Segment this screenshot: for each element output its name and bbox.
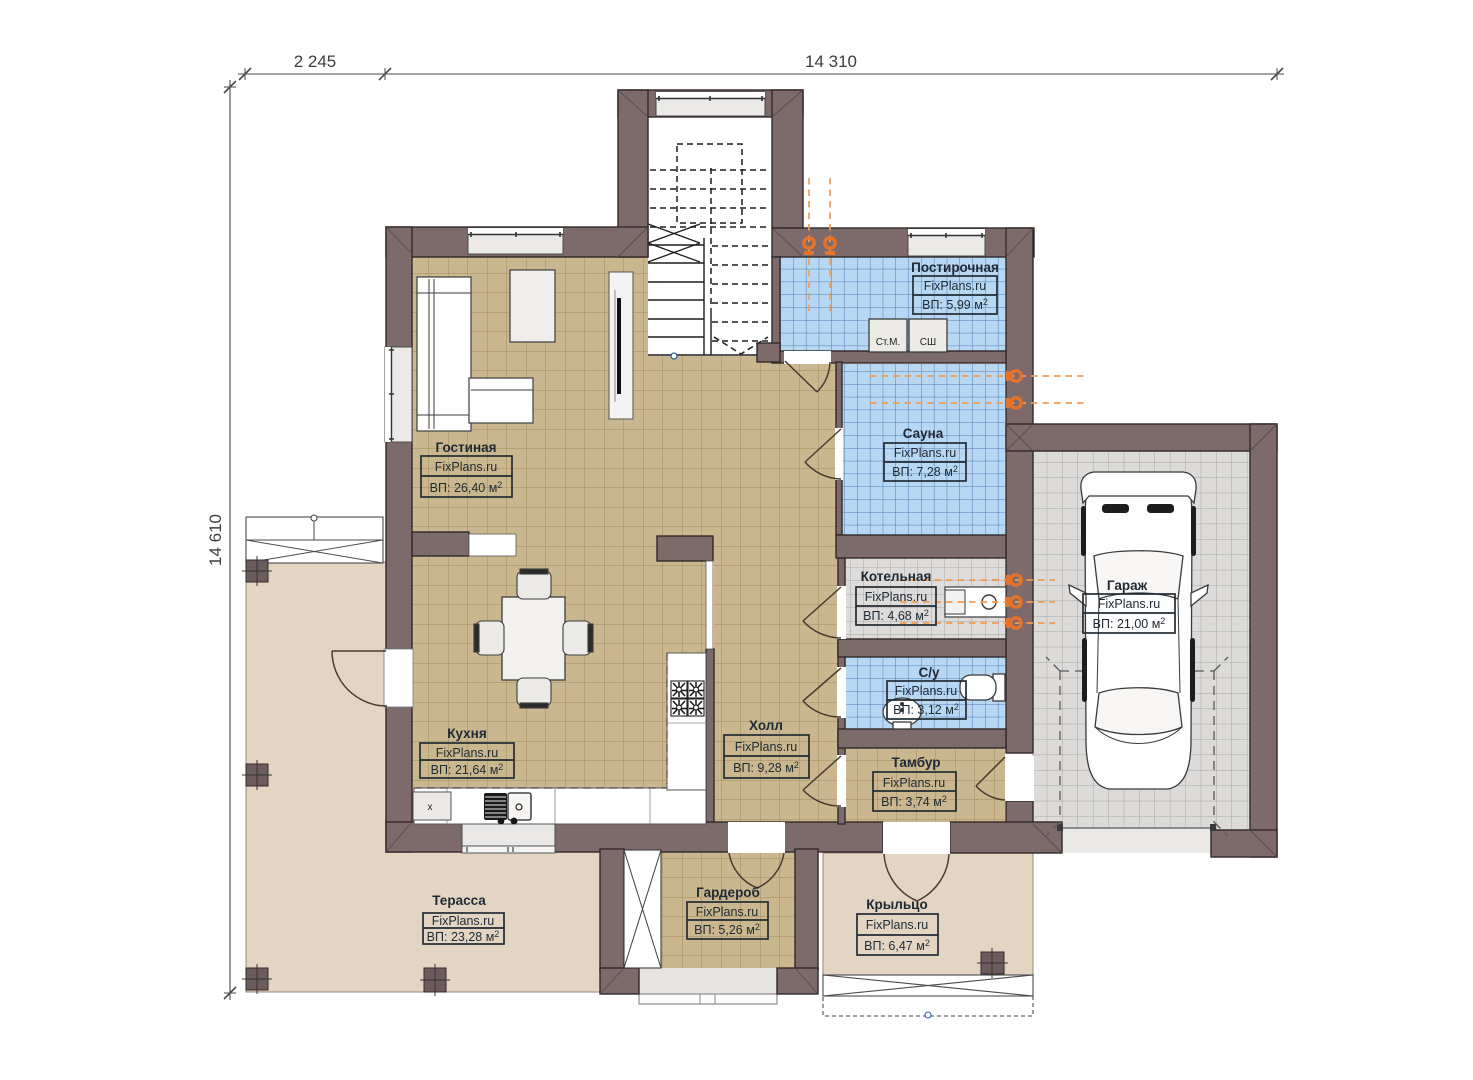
svg-text:FixPlans.ru: FixPlans.ru (432, 914, 495, 928)
svg-text:FixPlans.ru: FixPlans.ru (865, 590, 928, 604)
svg-text:FixPlans.ru: FixPlans.ru (866, 918, 929, 932)
svg-text:ВП: 26,40 м2: ВП: 26,40 м2 (430, 480, 503, 495)
svg-text:FixPlans.ru: FixPlans.ru (894, 446, 957, 460)
svg-text:FixPlans.ru: FixPlans.ru (883, 776, 946, 790)
svg-text:Кухня: Кухня (447, 726, 486, 741)
svg-text:Ст.М.: Ст.М. (876, 337, 901, 348)
svg-text:14 310: 14 310 (805, 52, 857, 71)
svg-text:ВП: 7,28 м2: ВП: 7,28 м2 (892, 464, 958, 479)
svg-text:ВП: 6,47 м2: ВП: 6,47 м2 (864, 938, 930, 953)
svg-text:Тамбур: Тамбур (892, 755, 941, 770)
svg-text:СШ: СШ (920, 337, 936, 348)
svg-text:Гардероб: Гардероб (696, 885, 760, 900)
svg-text:FixPlans.ru: FixPlans.ru (436, 746, 499, 760)
svg-text:Гараж: Гараж (1107, 578, 1148, 593)
svg-text:2 245: 2 245 (294, 52, 337, 71)
svg-text:Крыльцо: Крыльцо (866, 897, 927, 912)
svg-text:ВП: 9,28 м2: ВП: 9,28 м2 (733, 760, 799, 775)
svg-text:Сауна: Сауна (903, 426, 944, 441)
svg-text:FixPlans.ru: FixPlans.ru (895, 684, 958, 698)
svg-text:ВП: 21,64 м2: ВП: 21,64 м2 (431, 762, 504, 777)
svg-text:ВП: 5,99 м2: ВП: 5,99 м2 (922, 297, 988, 312)
svg-text:ВП: 3,12 м2: ВП: 3,12 м2 (893, 702, 959, 717)
svg-text:ВП: 5,26 м2: ВП: 5,26 м2 (694, 922, 760, 937)
svg-text:FixPlans.ru: FixPlans.ru (1098, 597, 1161, 611)
svg-text:ВП: 21,00 м2: ВП: 21,00 м2 (1093, 616, 1166, 631)
svg-text:Холл: Холл (749, 718, 783, 733)
svg-text:С/у: С/у (918, 665, 940, 680)
svg-text:ВП: 3,74 м2: ВП: 3,74 м2 (881, 794, 947, 809)
svg-text:ВП: 23,28 м2: ВП: 23,28 м2 (427, 929, 500, 944)
svg-text:Котельная: Котельная (861, 569, 932, 584)
svg-text:FixPlans.ru: FixPlans.ru (696, 905, 759, 919)
svg-text:FixPlans.ru: FixPlans.ru (924, 279, 987, 293)
svg-text:Гостиная: Гостиная (435, 440, 496, 455)
svg-text:Терасса: Терасса (432, 893, 486, 908)
svg-text:ВП: 4,68 м2: ВП: 4,68 м2 (863, 608, 929, 623)
svg-text:Постирочная: Постирочная (911, 260, 999, 275)
svg-text:FixPlans.ru: FixPlans.ru (435, 460, 498, 474)
svg-text:14 610: 14 610 (206, 514, 225, 566)
svg-text:x: x (428, 802, 433, 813)
svg-text:FixPlans.ru: FixPlans.ru (735, 740, 798, 754)
